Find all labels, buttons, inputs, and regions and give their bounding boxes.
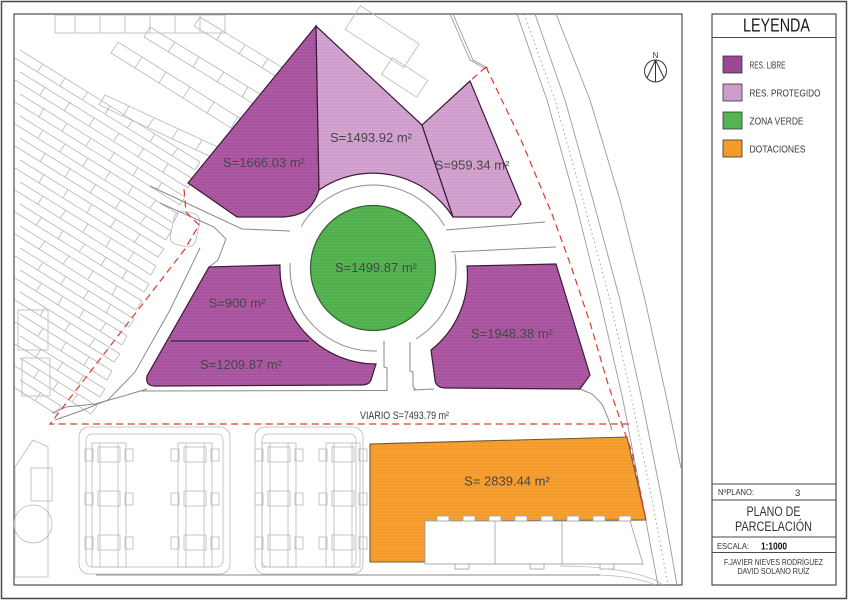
svg-text:F.JAVIER NIEVES RODRÍGUEZ: F.JAVIER NIEVES RODRÍGUEZ: [724, 558, 823, 567]
svg-text:DOTACIONES: DOTACIONES: [750, 145, 806, 156]
svg-text:ESCALA:: ESCALA:: [717, 542, 749, 551]
svg-text:RES. LIBRE: RES. LIBRE: [750, 61, 786, 72]
svg-text:DAVID SOLANO RUÍZ: DAVID SOLANO RUÍZ: [738, 567, 810, 576]
svg-text:S=959.34 m²: S=959.34 m²: [435, 158, 510, 173]
svg-text:S= 2839.44 m²: S= 2839.44 m²: [464, 474, 550, 489]
svg-text:S=1493.92 m²: S=1493.92 m²: [330, 130, 413, 145]
svg-text:S=1948.38 m²: S=1948.38 m²: [471, 326, 554, 341]
svg-text:VIARIO S=7493.79 m²: VIARIO S=7493.79 m²: [360, 410, 449, 422]
svg-text:PARCELACIÓN: PARCELACIÓN: [735, 519, 812, 534]
svg-text:N: N: [653, 51, 659, 60]
svg-text:ZONA VERDE: ZONA VERDE: [750, 117, 804, 128]
svg-text:S=1499.87 m²: S=1499.87 m²: [335, 260, 418, 275]
svg-text:RES. PROTEGIDO: RES. PROTEGIDO: [750, 89, 821, 100]
svg-text:S=1666.03 m²: S=1666.03 m²: [223, 155, 306, 170]
svg-text:LEYENDA: LEYENDA: [743, 15, 811, 36]
svg-text:PLANO DE: PLANO DE: [747, 504, 801, 519]
svg-text:NºPLANO:: NºPLANO:: [718, 488, 754, 497]
svg-text:3: 3: [795, 488, 800, 499]
svg-text:S=900 m²: S=900 m²: [209, 296, 266, 311]
svg-text:1:1000: 1:1000: [761, 542, 787, 553]
svg-text:S=1209.87 m²: S=1209.87 m²: [200, 357, 283, 372]
